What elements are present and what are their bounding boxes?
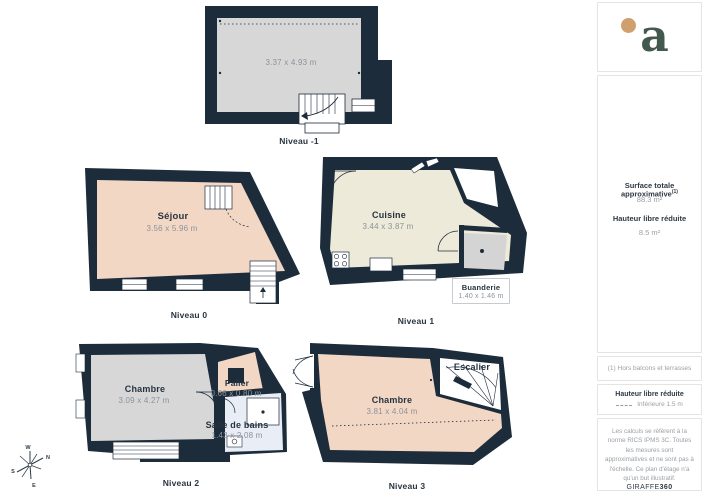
footnote-marker: (1) <box>672 189 678 195</box>
window-icon <box>403 269 436 280</box>
surface-total-value: 88.3 m² <box>598 196 701 204</box>
legend-box: Hauteur libre réduite Inférieure 1.5 m <box>597 384 702 415</box>
room-dims-chambre-n2: 3.09 x 4.27 m <box>118 397 169 405</box>
room-name-chambre-n3: Chambre <box>372 396 412 405</box>
level-label-niveau-1: Niveau 1 <box>398 317 435 326</box>
footnote-box: (1) Hors balcons et terrasses <box>597 356 702 381</box>
room-name-escalier: Escalier <box>454 363 490 372</box>
level-label-niveau-3: Niveau 3 <box>389 482 426 491</box>
room-name-salle-de-bains: Salle de bains <box>206 421 269 430</box>
brand-wordmark: GIRAFFE360 <box>626 484 672 491</box>
brand-logo-box: a <box>597 2 702 72</box>
door-opening <box>302 354 314 388</box>
disclaimer-text: Les calculs se réfèrent à la norme RICS … <box>605 427 694 484</box>
room-dims-chambre-n3: 3.81 x 4.04 m <box>366 408 417 416</box>
brand-logo-icon: a <box>630 15 669 59</box>
stove-icon <box>332 252 349 268</box>
legend-value: Inférieure 1.5 m <box>637 402 683 409</box>
logo-dot-icon <box>621 18 636 33</box>
plan-niveau-0 <box>78 163 308 315</box>
dashed-line-icon <box>616 405 632 406</box>
buanderie-wall <box>459 225 464 269</box>
balcony-icon <box>113 442 179 459</box>
plan-niveau-2 <box>75 340 290 475</box>
room-dims-buanderie: 1.40 x 1.46 m <box>458 293 503 300</box>
staircase-icon <box>299 94 345 133</box>
surface-summary-box: Surface totale approximative(1) 88.3 m² … <box>597 75 702 353</box>
logo-letter: a <box>640 11 669 62</box>
divider-wall <box>214 352 218 388</box>
reduced-height-title: Hauteur libre réduite <box>598 215 701 223</box>
level-label-niveau-0: Niveau 0 <box>171 311 208 320</box>
counter-icon <box>370 258 392 271</box>
stairs-down-icon <box>250 261 276 303</box>
compass-west: W <box>25 445 31 451</box>
compass-north: N <box>46 455 50 461</box>
compass-icon: W N S E <box>8 443 58 493</box>
room-dims-niveau-minus-1: 3.37 x 4.93 m <box>265 59 316 67</box>
compass-south: S <box>11 469 15 475</box>
room-dims-cuisine: 3.44 x 3.87 m <box>362 223 413 231</box>
room-name-buanderie: Buanderie <box>462 283 500 292</box>
sidebar: a Surface totale approximative(1) 88.3 m… <box>597 0 704 498</box>
room-name-sejour: Séjour <box>158 212 189 222</box>
buanderie-floor <box>464 233 507 270</box>
room-name-chambre-n2: Chambre <box>125 385 165 394</box>
room-dims-sejour: 3.56 x 5.96 m <box>146 225 197 233</box>
reduced-height-value: 8.5 m² <box>598 229 701 237</box>
footnote-text: (1) Hors balcons et terrasses <box>608 365 691 372</box>
level-label-niveau-2: Niveau 2 <box>163 479 200 488</box>
window-icon <box>352 99 375 112</box>
level-label-niveau-minus-1: Niveau -1 <box>279 137 319 146</box>
disclaimer-box: Les calculs se réfèrent à la norme RICS … <box>597 418 702 491</box>
room-name-palier: Palier <box>225 379 249 388</box>
plan-niveau-minus-1 <box>200 2 395 134</box>
buanderie-label-box: Buanderie 1.40 x 1.46 m <box>452 278 510 304</box>
legend-title: Hauteur libre réduite <box>615 391 683 398</box>
room-dims-palier: 0.66 x 0.80 m <box>210 390 261 398</box>
room-name-cuisine: Cuisine <box>372 211 406 220</box>
room-dims-salle-de-bains: 1.43 x 2.08 m <box>211 432 262 440</box>
floorplan-page: 3.37 x 4.93 m Niveau -1 Séjour 3.56 x 5.… <box>0 0 705 498</box>
compass-east: E <box>32 483 36 489</box>
buanderie-dot <box>480 249 484 253</box>
